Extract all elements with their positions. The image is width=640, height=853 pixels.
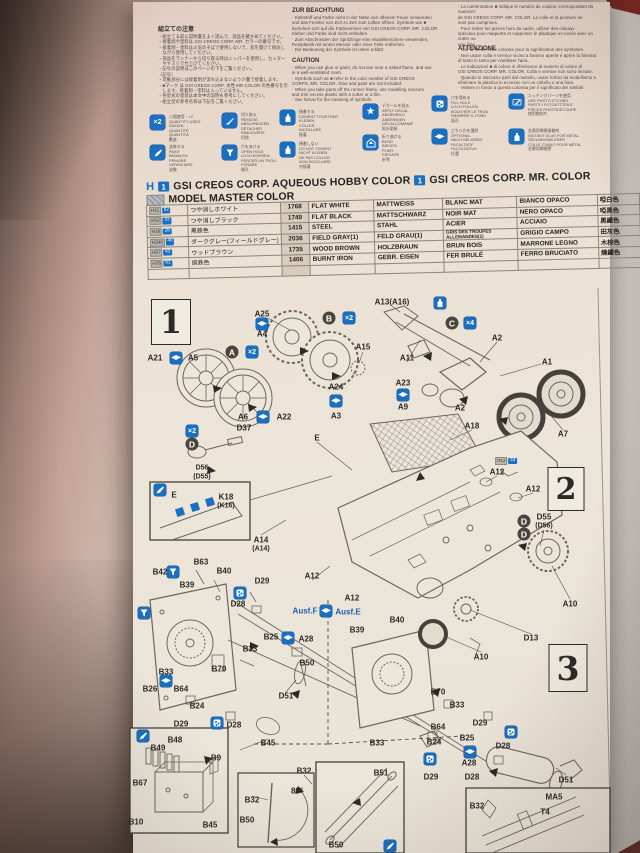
photo-vignette (0, 0, 640, 853)
photo-of-instruction-sheet: 組立ての注意 ・組立てる前に説明書をよく読んで、部品を確かめてください。・接着剤… (0, 0, 640, 853)
